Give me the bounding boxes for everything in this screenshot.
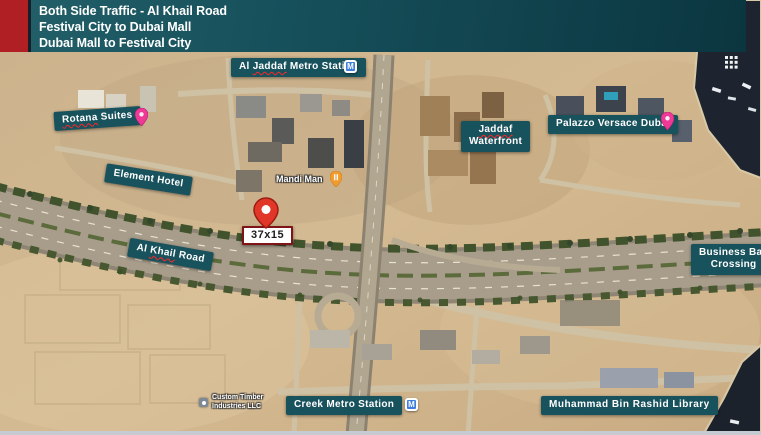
metro-letter: M — [408, 400, 415, 409]
metro-station-icon: M — [405, 398, 418, 411]
label-text: Road — [175, 249, 206, 265]
metro-station-icon: M — [344, 60, 357, 73]
business-poi-icon — [199, 398, 208, 407]
label-text: Industries LLC — [212, 403, 263, 412]
label-business-bay-crossing: Business BayCrossing — [691, 244, 761, 275]
label-text: Crossing — [699, 259, 761, 271]
label-text: Waterfront — [469, 136, 522, 148]
label-muhammad-bin-rashid-library: Muhammad Bin Rashid Library — [541, 396, 718, 415]
label-text: Palazzo Versace Dubai — [556, 118, 670, 129]
label-text: Suites — [97, 110, 133, 123]
label-text: Business Bay — [699, 247, 761, 259]
label-text-misspelled: Rotana — [62, 112, 98, 125]
banner-line-1: Both Side Traffic - Al Khail Road — [39, 3, 227, 19]
banner-text: Both Side Traffic - Al Khail Road Festiv… — [31, 0, 227, 52]
title-banner: Both Side Traffic - Al Khail Road Festiv… — [0, 0, 746, 52]
banner-accent-bar — [0, 0, 31, 52]
label-text: Creek Metro Station — [294, 399, 394, 410]
hotel-pin-icon — [661, 112, 674, 130]
label-text-misspelled: Khail — [149, 244, 176, 259]
hotel-pin-icon — [135, 108, 148, 126]
label-text: Custom Timber — [212, 394, 263, 403]
satellite-map-image — [0, 0, 761, 435]
label-jaddaf-waterfront: JaddafWaterfront — [461, 121, 530, 152]
label-creek-metro-station: Creek Metro Station — [286, 396, 402, 415]
label-text-misspelled: Jaddaf — [253, 61, 287, 72]
restaurant-pin-icon — [330, 171, 342, 187]
label-mandi-man: Mandi Man — [276, 174, 323, 184]
label-text: Muhammad Bin Rashid Library — [549, 399, 710, 410]
billboard-location-map: Both Side Traffic - Al Khail Road Festiv… — [0, 0, 761, 435]
label-custom-timber-industries: Custom TimberIndustries LLC — [212, 394, 263, 411]
label-palazzo-versace-dubai: Palazzo Versace Dubai — [548, 115, 678, 134]
metro-letter: M — [347, 62, 354, 71]
banner-line-2: Festival City to Dubai Mall — [39, 19, 227, 35]
billboard-location-pin-icon — [253, 197, 279, 229]
label-text-misspelled: Jaddaf — [469, 124, 522, 136]
label-text: Al — [239, 61, 253, 72]
banner-line-3: Dubai Mall to Festival City — [39, 35, 227, 51]
grid-dots-icon — [725, 56, 738, 69]
window-edge-strip — [0, 431, 761, 435]
